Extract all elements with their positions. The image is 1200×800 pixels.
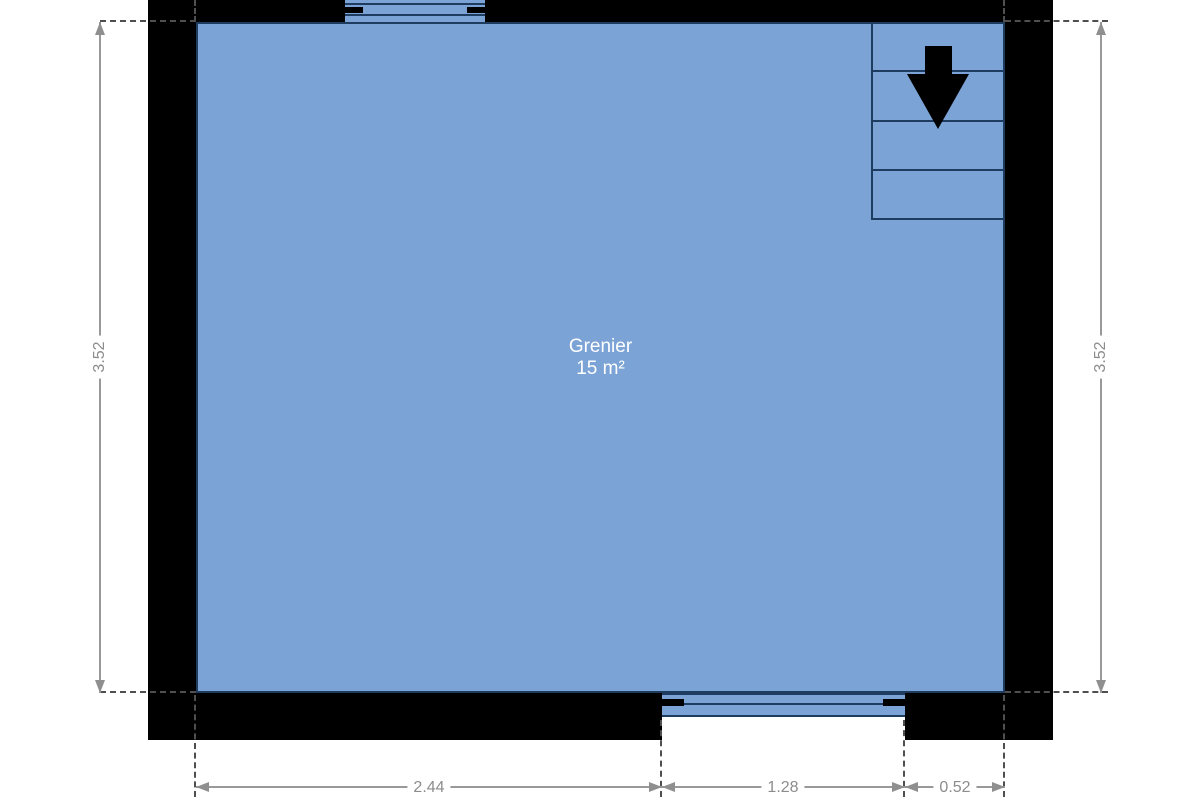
stairs-down-arrow-icon <box>907 74 969 129</box>
room-name: Grenier <box>196 336 1005 358</box>
dimension-arrow-icon <box>662 782 675 792</box>
room-area: 15 m² <box>196 358 1005 380</box>
extension-line <box>194 0 196 22</box>
dimension-arrow-icon <box>1096 22 1106 35</box>
window-glass-line <box>345 3 485 5</box>
wall-left <box>148 0 196 740</box>
window-glass-band <box>662 693 905 717</box>
window-end-tick <box>345 7 363 13</box>
window-glass-line <box>662 703 905 705</box>
extension-line <box>100 691 196 693</box>
dimension-label-left: 3.52 <box>90 335 110 378</box>
extension-line <box>1003 0 1005 22</box>
stair-tread-line <box>873 218 1005 220</box>
dimension-label-right: 3.52 <box>1091 335 1111 378</box>
dimension-label-bottom-2: 1.28 <box>761 778 804 798</box>
wall-top-left <box>196 0 345 22</box>
window-end-tick <box>662 699 684 706</box>
wall-bottom-right <box>905 693 1005 740</box>
stair-tread-line <box>873 169 1005 171</box>
window-end-tick <box>883 699 905 706</box>
dimension-arrow-icon <box>196 782 209 792</box>
wall-right <box>1005 0 1053 740</box>
extension-line <box>1005 691 1108 693</box>
dimension-arrow-icon <box>892 782 905 792</box>
wall-top-right <box>485 0 1005 22</box>
window-glass-line <box>662 693 905 695</box>
room-label: Grenier 15 m² <box>196 336 1005 380</box>
window-end-tick <box>467 7 485 13</box>
window-bottom <box>662 693 905 740</box>
window-glass-line <box>345 14 485 16</box>
extension-line <box>1005 20 1108 22</box>
dimension-label-bottom-3: 0.52 <box>933 778 976 798</box>
dimension-arrow-icon <box>905 782 918 792</box>
dimension-arrow-icon <box>95 22 105 35</box>
wall-bottom-left <box>196 693 662 740</box>
floor-plan: Grenier 15 m² 3.52 3.52 2.44 1.28 0.52 <box>0 0 1200 800</box>
stairs-down-arrow-icon <box>925 46 952 76</box>
dimension-arrow-icon <box>95 680 105 693</box>
dimension-arrow-icon <box>1096 680 1106 693</box>
dimension-label-bottom-1: 2.44 <box>407 778 450 798</box>
extension-line <box>100 20 196 22</box>
dimension-arrow-icon <box>992 782 1005 792</box>
dimension-line-bottom <box>196 786 1005 788</box>
staircase <box>871 24 1005 220</box>
window-glass-line <box>662 715 905 717</box>
dimension-arrow-icon <box>649 782 662 792</box>
window-top <box>345 0 485 22</box>
